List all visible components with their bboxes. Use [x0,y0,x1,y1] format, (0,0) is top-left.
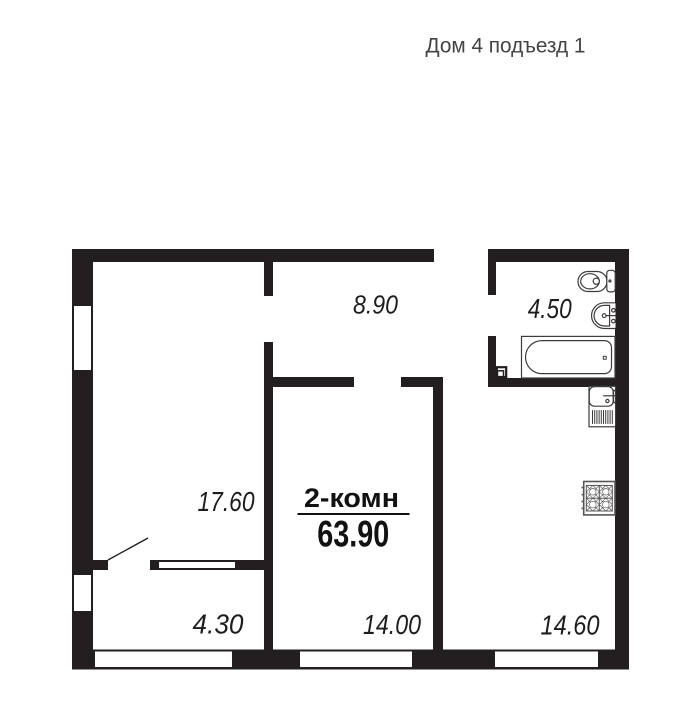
svg-text:Дом 4 подъезд 1: Дом 4 подъезд 1 [426,35,586,58]
svg-text:4.30: 4.30 [193,609,244,640]
svg-text:14.60: 14.60 [541,610,600,641]
svg-text:4.50: 4.50 [528,293,572,324]
svg-text:2-комн: 2-комн [304,483,399,513]
svg-text:8.90: 8.90 [353,290,398,320]
svg-text:14.00: 14.00 [363,609,421,640]
svg-text:17.60: 17.60 [198,486,255,517]
svg-text:63.90: 63.90 [317,514,389,555]
